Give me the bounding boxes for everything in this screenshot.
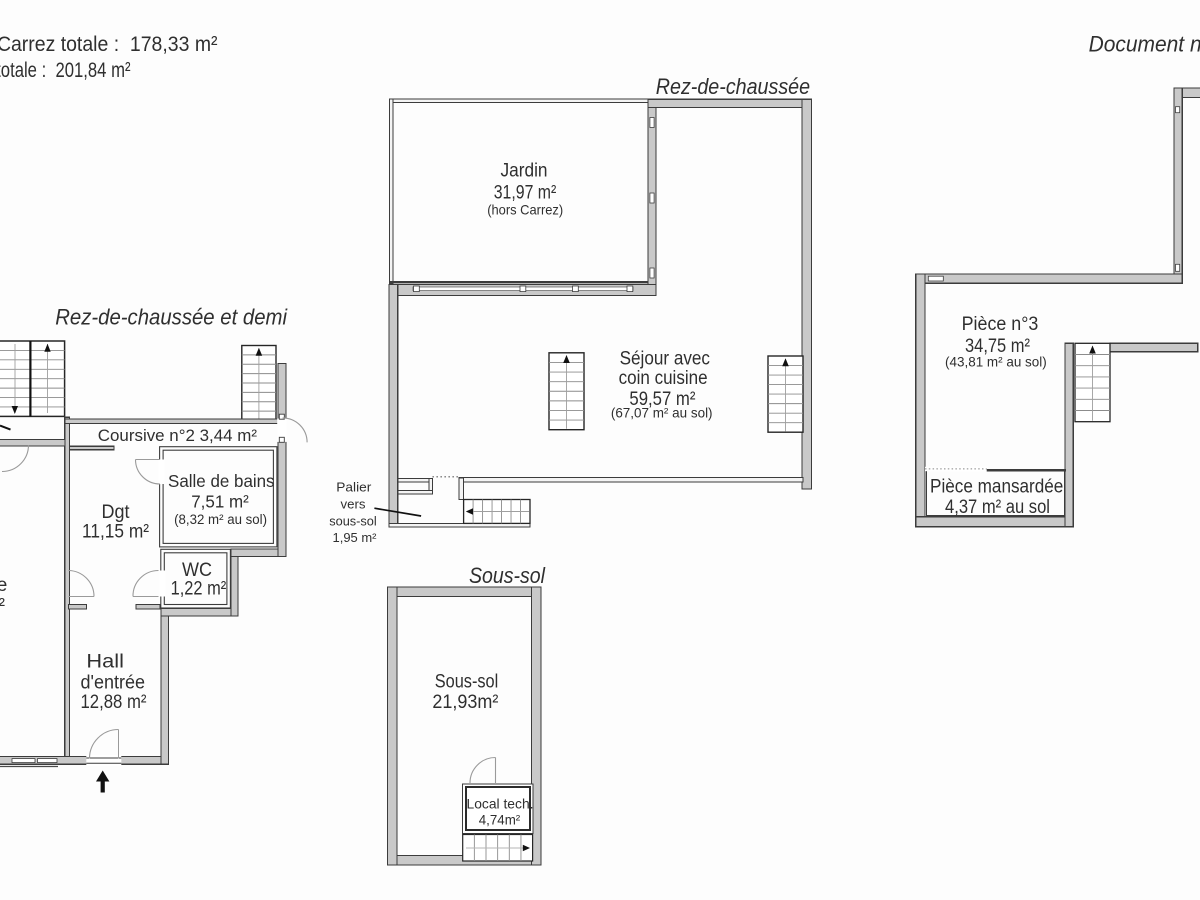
svg-text:31,97 m²: 31,97 m² <box>494 182 557 203</box>
svg-text:Rez-de-chaussée et demi: Rez-de-chaussée et demi <box>55 305 288 330</box>
svg-text:Sous-sol: Sous-sol <box>469 563 546 588</box>
svg-text:(67,07 m² au sol): (67,07 m² au sol) <box>611 404 713 420</box>
svg-text:vers: vers <box>341 497 367 512</box>
svg-text:Palier: Palier <box>336 480 372 495</box>
svg-text:Document non contractuel: Document non contractuel <box>1089 31 1200 56</box>
svg-text:Rez-de-chaussée: Rez-de-chaussée <box>656 74 810 99</box>
svg-text:Dgt: Dgt <box>102 502 131 523</box>
svg-text:e: e <box>0 575 7 596</box>
svg-text:Sous-sol: Sous-sol <box>435 672 499 693</box>
svg-text:m²: m² <box>0 596 5 617</box>
svg-text:4,37 m² au sol: 4,37 m² au sol <box>945 497 1050 518</box>
svg-text:Coursive n°2 3,44 m²: Coursive n°2 3,44 m² <box>98 426 258 445</box>
svg-text:(hors Carrez): (hors Carrez) <box>487 202 563 218</box>
svg-text:11,15 m²: 11,15 m² <box>82 522 149 543</box>
svg-text:7,51 m²: 7,51 m² <box>191 492 249 512</box>
svg-text:Pièce mansardée: Pièce mansardée <box>930 477 1063 498</box>
svg-text:Surface Carrez totale : 178,3: Surface Carrez totale : 178,33 m² <box>0 33 218 56</box>
svg-text:12,88 m²: 12,88 m² <box>81 692 147 713</box>
svg-text:(43,81 m² au sol): (43,81 m² au sol) <box>945 354 1047 370</box>
svg-text:Jardin: Jardin <box>501 160 548 181</box>
svg-text:coin cuisine: coin cuisine <box>619 368 708 389</box>
svg-text:Hall: Hall <box>86 652 124 673</box>
svg-text:Séjour avec: Séjour avec <box>620 349 710 370</box>
svg-text:sous-sol: sous-sol <box>329 514 377 529</box>
svg-text:4,74m²: 4,74m² <box>479 812 521 828</box>
svg-text:Local tech.: Local tech. <box>467 796 534 812</box>
svg-text:(8,32 m² au sol): (8,32 m² au sol) <box>174 512 267 527</box>
svg-text:21,93m²: 21,93m² <box>432 692 498 713</box>
svg-text:Salle de bains: Salle de bains <box>168 471 275 491</box>
svg-text:1,95 m²: 1,95 m² <box>333 530 378 545</box>
svg-text:Pièce n°3: Pièce n°3 <box>962 314 1039 335</box>
svg-text:d'entrée: d'entrée <box>81 673 146 694</box>
svg-text:Surface totale : 201,84 m²: Surface totale : 201,84 m² <box>0 59 131 82</box>
svg-text:1,22 m²: 1,22 m² <box>171 579 227 600</box>
